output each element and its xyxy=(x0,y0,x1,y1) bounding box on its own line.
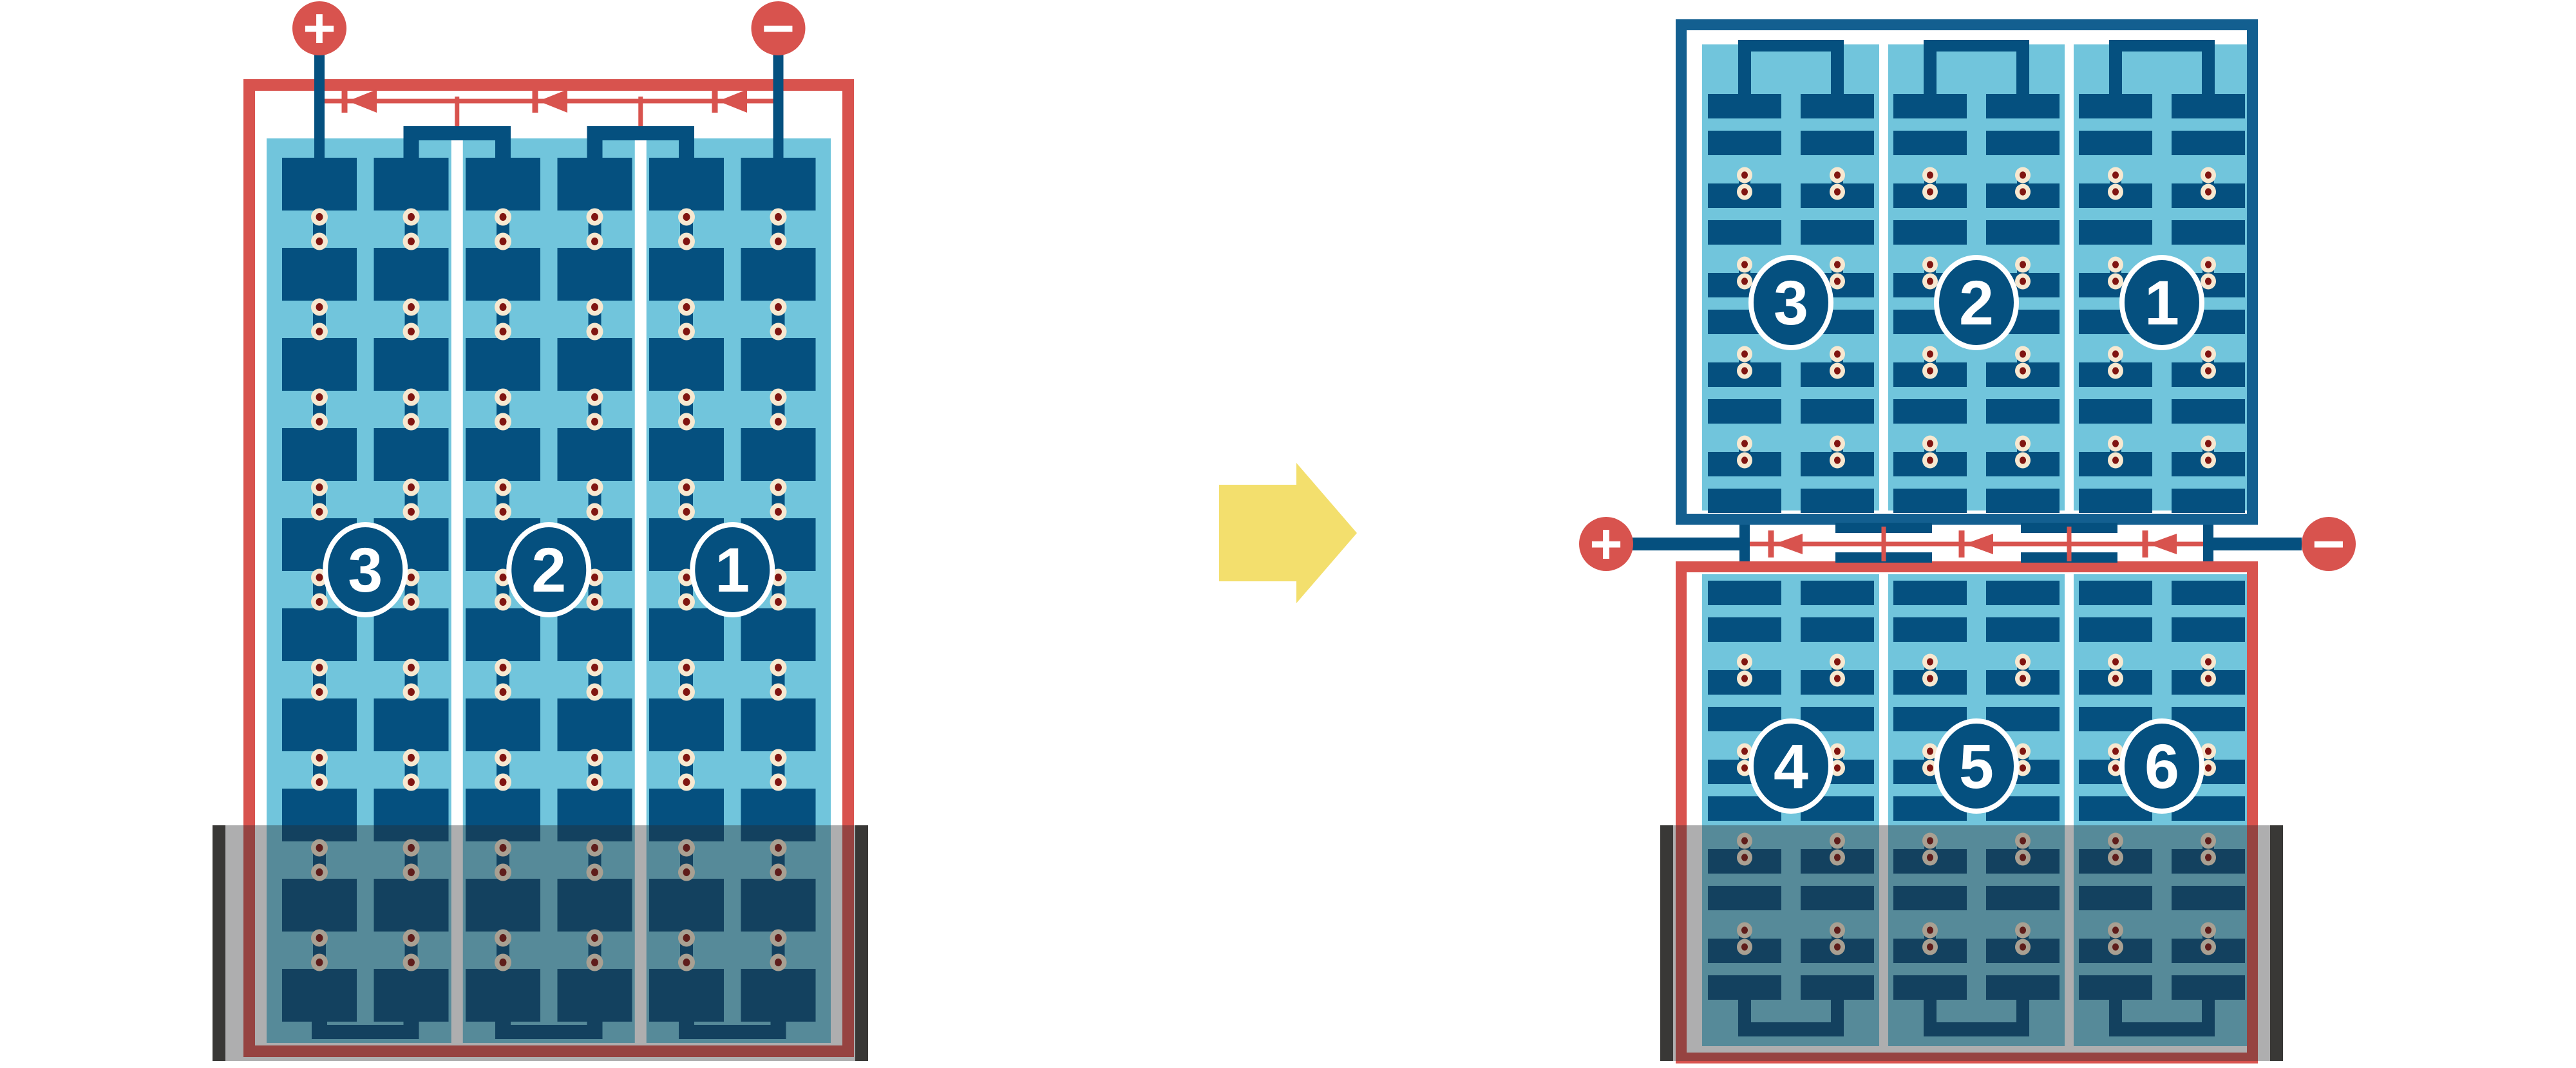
solder-joint xyxy=(1737,346,1752,379)
joint-core xyxy=(1741,277,1748,285)
joint-core xyxy=(1741,747,1748,754)
solder-joint xyxy=(678,209,695,250)
shade-overlay xyxy=(213,825,868,1061)
terminal-symbol: − xyxy=(2312,512,2345,576)
solder-joint xyxy=(2201,654,2216,687)
solar-cell xyxy=(2172,131,2245,155)
joint-core xyxy=(2020,747,2026,754)
solder-joint xyxy=(678,389,695,431)
solder-joint xyxy=(587,479,603,521)
joint-core xyxy=(1927,747,1933,754)
string-number: 1 xyxy=(715,535,750,605)
joint-core xyxy=(2112,188,2119,195)
solar-cell xyxy=(1801,581,1874,605)
solar-cell xyxy=(741,698,816,751)
solder-joint xyxy=(678,749,695,791)
solder-joint xyxy=(1922,654,1938,687)
joint-core xyxy=(408,688,415,696)
joint-core xyxy=(591,574,598,581)
solder-joint xyxy=(403,389,420,431)
joint-core xyxy=(500,754,507,762)
solar-cell xyxy=(741,608,816,661)
joint-core xyxy=(2020,675,2026,682)
shade-edge-cap xyxy=(1660,825,1673,1061)
solder-joint xyxy=(587,749,603,791)
joint-core xyxy=(316,418,323,426)
joint-core xyxy=(2112,367,2119,374)
joint-core xyxy=(1741,658,1748,665)
joint-core xyxy=(2205,261,2211,268)
joint-core xyxy=(2205,456,2211,464)
solder-joint xyxy=(403,209,420,250)
joint-core xyxy=(1927,277,1933,285)
joint-core xyxy=(1927,367,1933,374)
joint-core xyxy=(408,418,415,426)
right-module: 321456+− xyxy=(1579,25,2356,1062)
joint-core xyxy=(2112,440,2119,447)
joint-core xyxy=(591,508,598,516)
terminal-lead xyxy=(1631,538,1742,550)
joint-core xyxy=(683,598,690,606)
joint-core xyxy=(408,598,415,606)
joint-core xyxy=(316,303,323,311)
solder-joint xyxy=(2201,436,2216,469)
solar-cell xyxy=(2172,581,2245,605)
joint-core xyxy=(683,418,690,426)
joint-core xyxy=(1927,171,1933,178)
diode-bar xyxy=(1959,530,1965,557)
solder-joint xyxy=(2015,346,2031,379)
solar-cell xyxy=(2079,220,2152,245)
joint-core xyxy=(2020,764,2026,771)
bridge-leg xyxy=(587,126,603,163)
joint-core xyxy=(2112,261,2119,268)
joint-core xyxy=(775,418,782,426)
joint-core xyxy=(775,483,782,491)
joint-core xyxy=(1834,188,1841,195)
string-gap xyxy=(2065,44,2074,511)
solder-joint xyxy=(495,389,511,431)
solder-joint xyxy=(311,479,328,521)
joint-core xyxy=(591,598,598,606)
bridge-leg xyxy=(2016,40,2029,97)
joint-core xyxy=(1927,456,1933,464)
terminal-symbol: + xyxy=(1589,512,1622,576)
solar-cell xyxy=(282,158,357,211)
solder-joint xyxy=(495,749,511,791)
solar-cell xyxy=(282,428,357,481)
joint-core xyxy=(1927,764,1933,771)
joint-core xyxy=(775,508,782,516)
solar-cell xyxy=(1893,131,1967,155)
joint-core xyxy=(408,213,415,221)
solder-joint xyxy=(2108,167,2123,200)
solder-joint xyxy=(587,209,603,250)
solar-cell xyxy=(741,248,816,301)
joint-core xyxy=(408,664,415,671)
joint-core xyxy=(1741,456,1748,464)
joint-core xyxy=(500,213,507,221)
solar-cell xyxy=(1801,617,1874,642)
joint-core xyxy=(408,508,415,516)
joint-core xyxy=(775,574,782,581)
joint-core xyxy=(591,754,598,762)
transition-arrow-group xyxy=(1219,463,1357,603)
solar-cell xyxy=(1893,581,1967,605)
joint-core xyxy=(1834,747,1841,754)
solder-joint xyxy=(1737,257,1752,290)
solar-cell xyxy=(649,338,724,391)
solar-cell xyxy=(374,338,449,391)
solder-joint xyxy=(1830,167,1845,200)
solder-joint xyxy=(1922,346,1938,379)
solar-cell xyxy=(741,338,816,391)
bridge-bar xyxy=(2109,40,2215,52)
joint-core xyxy=(1834,675,1841,682)
joint-core xyxy=(683,664,690,671)
solar-cell xyxy=(2079,617,2152,642)
bypass-diode xyxy=(1959,530,1994,557)
joint-core xyxy=(775,303,782,311)
bridge-leg xyxy=(1831,40,1844,97)
solar-cell xyxy=(1801,220,1874,245)
joint-core xyxy=(2020,261,2026,268)
string-number-circle: 3 xyxy=(1751,258,1831,348)
bridge-leg xyxy=(495,126,511,163)
shade-overlay-group xyxy=(1660,825,2283,1061)
junction-tick xyxy=(455,97,459,126)
string-number: 2 xyxy=(531,535,566,605)
joint-core xyxy=(2020,350,2026,357)
solder-joint xyxy=(2201,346,2216,379)
shade-overlay xyxy=(1660,825,2283,1061)
joint-core xyxy=(1741,440,1748,447)
joint-core xyxy=(1741,367,1748,374)
joint-core xyxy=(2020,367,2026,374)
diode-bar xyxy=(2143,530,2148,557)
solder-joint xyxy=(1830,257,1845,290)
joint-core xyxy=(1834,277,1841,285)
solder-joint xyxy=(2201,167,2216,200)
bypass-diode xyxy=(2143,530,2177,557)
joint-core xyxy=(2112,675,2119,682)
positive-terminal: + xyxy=(292,0,346,60)
solar-cell xyxy=(2079,581,2152,605)
bridge-leg xyxy=(1924,40,1937,97)
joint-core xyxy=(2205,440,2211,447)
string-number-circle: 3 xyxy=(325,525,405,615)
solar-cell xyxy=(649,608,724,661)
joint-core xyxy=(2205,367,2211,374)
joint-core xyxy=(1927,658,1933,665)
joint-core xyxy=(316,574,323,581)
joint-core xyxy=(1927,350,1933,357)
joint-core xyxy=(591,393,598,401)
diode-triangle xyxy=(348,89,377,113)
joint-core xyxy=(775,328,782,335)
bridge-bar xyxy=(1738,40,1844,52)
solder-joint xyxy=(1922,436,1938,469)
joint-core xyxy=(683,393,690,401)
joint-core xyxy=(1741,188,1748,195)
solder-joint xyxy=(2108,257,2123,290)
string-number-circle: 2 xyxy=(1937,258,2016,348)
solder-joint xyxy=(1737,654,1752,687)
joint-core xyxy=(683,688,690,696)
joint-core xyxy=(591,483,598,491)
joint-core xyxy=(2205,658,2211,665)
solar-cell xyxy=(374,248,449,301)
joint-core xyxy=(775,754,782,762)
solar-cell xyxy=(1708,131,1781,155)
joint-core xyxy=(2020,440,2026,447)
bridge-leg xyxy=(1738,40,1751,97)
solar-cell xyxy=(466,338,540,391)
joint-core xyxy=(591,778,598,786)
bridge-bar xyxy=(587,126,695,140)
joint-core xyxy=(316,688,323,696)
joint-core xyxy=(408,238,415,245)
joint-core xyxy=(2112,456,2119,464)
shade-edge-cap xyxy=(855,825,868,1061)
diode-bar xyxy=(533,89,538,113)
solder-joint xyxy=(403,479,420,521)
joint-core xyxy=(775,598,782,606)
joint-core xyxy=(408,574,415,581)
shade-edge-cap xyxy=(2270,825,2283,1061)
shade-overlay-group xyxy=(213,825,868,1061)
solder-joint xyxy=(1830,654,1845,687)
junction-tick xyxy=(638,97,643,126)
joint-core xyxy=(316,754,323,762)
joint-core xyxy=(683,328,690,335)
joint-core xyxy=(2112,658,2119,665)
solder-joint xyxy=(1737,167,1752,200)
joint-core xyxy=(408,303,415,311)
solder-joint xyxy=(2015,654,2031,687)
solar-cell xyxy=(466,248,540,301)
solder-joint xyxy=(495,479,511,521)
transition-arrow xyxy=(1219,463,1357,603)
joint-core xyxy=(408,754,415,762)
solar-cell xyxy=(282,608,357,661)
solar-cell xyxy=(649,698,724,751)
joint-core xyxy=(683,574,690,581)
solder-joint xyxy=(2015,167,2031,200)
solder-joint xyxy=(1737,436,1752,469)
diode-triangle xyxy=(1965,534,1993,554)
shade-edge-cap xyxy=(213,825,225,1061)
solar-cell xyxy=(1801,131,1874,155)
solder-joint xyxy=(311,659,328,701)
joint-core xyxy=(2112,277,2119,285)
solar-cell xyxy=(374,158,449,211)
bypass-diode xyxy=(342,89,377,113)
joint-core xyxy=(2112,747,2119,754)
joint-core xyxy=(500,328,507,335)
solar-cell xyxy=(558,248,632,301)
solder-joint xyxy=(587,659,603,701)
diode-triangle xyxy=(538,89,567,113)
solder-joint xyxy=(1830,436,1845,469)
bypass-diode-line xyxy=(1750,527,2203,561)
solder-joint xyxy=(587,389,603,431)
joint-core xyxy=(316,483,323,491)
joint-core xyxy=(1834,350,1841,357)
string-number-circle: 4 xyxy=(1751,721,1831,811)
solar-cell xyxy=(2172,94,2245,118)
solar-cell xyxy=(2079,94,2152,118)
joint-core xyxy=(500,303,507,311)
solder-joint xyxy=(1830,346,1845,379)
negative-terminal: − xyxy=(2302,512,2356,576)
joint-core xyxy=(2205,277,2211,285)
bridge-bar xyxy=(404,126,511,140)
joint-core xyxy=(591,213,598,221)
joint-core xyxy=(2205,764,2211,771)
joint-core xyxy=(500,664,507,671)
solder-joint xyxy=(770,659,787,701)
joint-core xyxy=(591,688,598,696)
joint-core xyxy=(1741,261,1748,268)
joint-core xyxy=(591,328,598,335)
string-number-circle: 6 xyxy=(2122,721,2202,811)
solar-cell xyxy=(1986,131,2060,155)
joint-core xyxy=(683,483,690,491)
solar-cell xyxy=(1986,94,2060,118)
solar-cell xyxy=(2172,489,2245,513)
terminal-stem xyxy=(773,50,784,163)
solar-cell xyxy=(466,608,540,661)
junction-tick xyxy=(1882,527,1886,561)
joint-core xyxy=(500,238,507,245)
joint-core xyxy=(316,778,323,786)
bridge-bar xyxy=(1924,40,2029,52)
solar-wiring-diagram: 321+− 321456+− xyxy=(0,0,2576,1068)
solar-cell xyxy=(1708,489,1781,513)
solder-joint xyxy=(2108,654,2123,687)
joint-core xyxy=(1834,764,1841,771)
string-number-circle: 5 xyxy=(1937,721,2016,811)
solar-cell xyxy=(282,698,357,751)
joint-core xyxy=(683,754,690,762)
solar-cell xyxy=(649,158,724,211)
joint-core xyxy=(408,393,415,401)
joint-core xyxy=(2205,350,2211,357)
solar-cell xyxy=(1801,399,1874,424)
joint-core xyxy=(2020,658,2026,665)
bypass-diode xyxy=(1768,530,1803,557)
joint-core xyxy=(408,778,415,786)
solar-cell xyxy=(1708,617,1781,642)
solar-cell xyxy=(2079,131,2152,155)
solder-joint xyxy=(311,389,328,431)
string-gap xyxy=(1879,44,1888,511)
joint-core xyxy=(500,778,507,786)
joint-core xyxy=(316,328,323,335)
solar-cell xyxy=(1708,399,1781,424)
string-number: 1 xyxy=(2145,268,2179,338)
terminal-stem xyxy=(314,50,325,163)
string-number-circle: 1 xyxy=(2122,258,2202,348)
terminal-lead xyxy=(2211,538,2302,550)
joint-core xyxy=(775,393,782,401)
joint-core xyxy=(2205,188,2211,195)
solar-cell xyxy=(1986,399,2060,424)
solder-joint xyxy=(2108,346,2123,379)
joint-core xyxy=(500,598,507,606)
joint-core xyxy=(591,664,598,671)
string-number: 6 xyxy=(2145,731,2179,801)
solar-cell xyxy=(1893,617,1967,642)
solder-joint xyxy=(495,209,511,250)
joint-core xyxy=(1834,658,1841,665)
solar-cell xyxy=(1801,94,1874,118)
solar-cell xyxy=(558,428,632,481)
joint-core xyxy=(316,393,323,401)
string-number: 3 xyxy=(1774,268,1808,338)
joint-core xyxy=(775,238,782,245)
solar-cell xyxy=(2079,489,2152,513)
diode-triangle xyxy=(1774,534,1803,554)
bypass-diode xyxy=(533,89,568,113)
solar-cell xyxy=(558,698,632,751)
solar-cell xyxy=(558,338,632,391)
solar-cell xyxy=(558,158,632,211)
string-number-circle: 2 xyxy=(509,525,589,615)
joint-core xyxy=(1741,350,1748,357)
bridge-leg xyxy=(2202,40,2215,97)
solar-cell xyxy=(1708,581,1781,605)
joint-core xyxy=(775,778,782,786)
solar-cell xyxy=(282,248,357,301)
joint-core xyxy=(1927,440,1933,447)
joint-core xyxy=(591,418,598,426)
joint-core xyxy=(683,238,690,245)
joint-core xyxy=(1834,367,1841,374)
joint-core xyxy=(2020,188,2026,195)
junction-tick xyxy=(2067,527,2072,561)
joint-core xyxy=(1927,261,1933,268)
joint-core xyxy=(2205,675,2211,682)
bridge-leg xyxy=(404,126,419,163)
bypass-diode xyxy=(712,89,748,113)
solar-cell xyxy=(1986,617,2060,642)
solar-cell xyxy=(741,428,816,481)
joint-core xyxy=(1834,171,1841,178)
solder-joint xyxy=(311,209,328,250)
joint-core xyxy=(316,664,323,671)
solar-cell xyxy=(741,158,816,211)
diode-bar xyxy=(1768,530,1774,557)
solar-cell xyxy=(1986,220,2060,245)
solar-cell xyxy=(1801,489,1874,513)
string-number: 2 xyxy=(1959,268,1994,338)
left-module: 321+− xyxy=(213,0,868,1061)
solar-cell xyxy=(558,608,632,661)
terminal-symbol: + xyxy=(303,0,336,60)
bridge-leg xyxy=(2109,40,2122,97)
solder-joint xyxy=(403,749,420,791)
string-number: 5 xyxy=(1959,731,1994,801)
joint-core xyxy=(683,303,690,311)
joint-core xyxy=(2112,764,2119,771)
solder-joint xyxy=(1922,257,1938,290)
joint-core xyxy=(1741,764,1748,771)
joint-core xyxy=(2020,456,2026,464)
joint-core xyxy=(1741,171,1748,178)
terminal-symbol: − xyxy=(762,0,795,60)
